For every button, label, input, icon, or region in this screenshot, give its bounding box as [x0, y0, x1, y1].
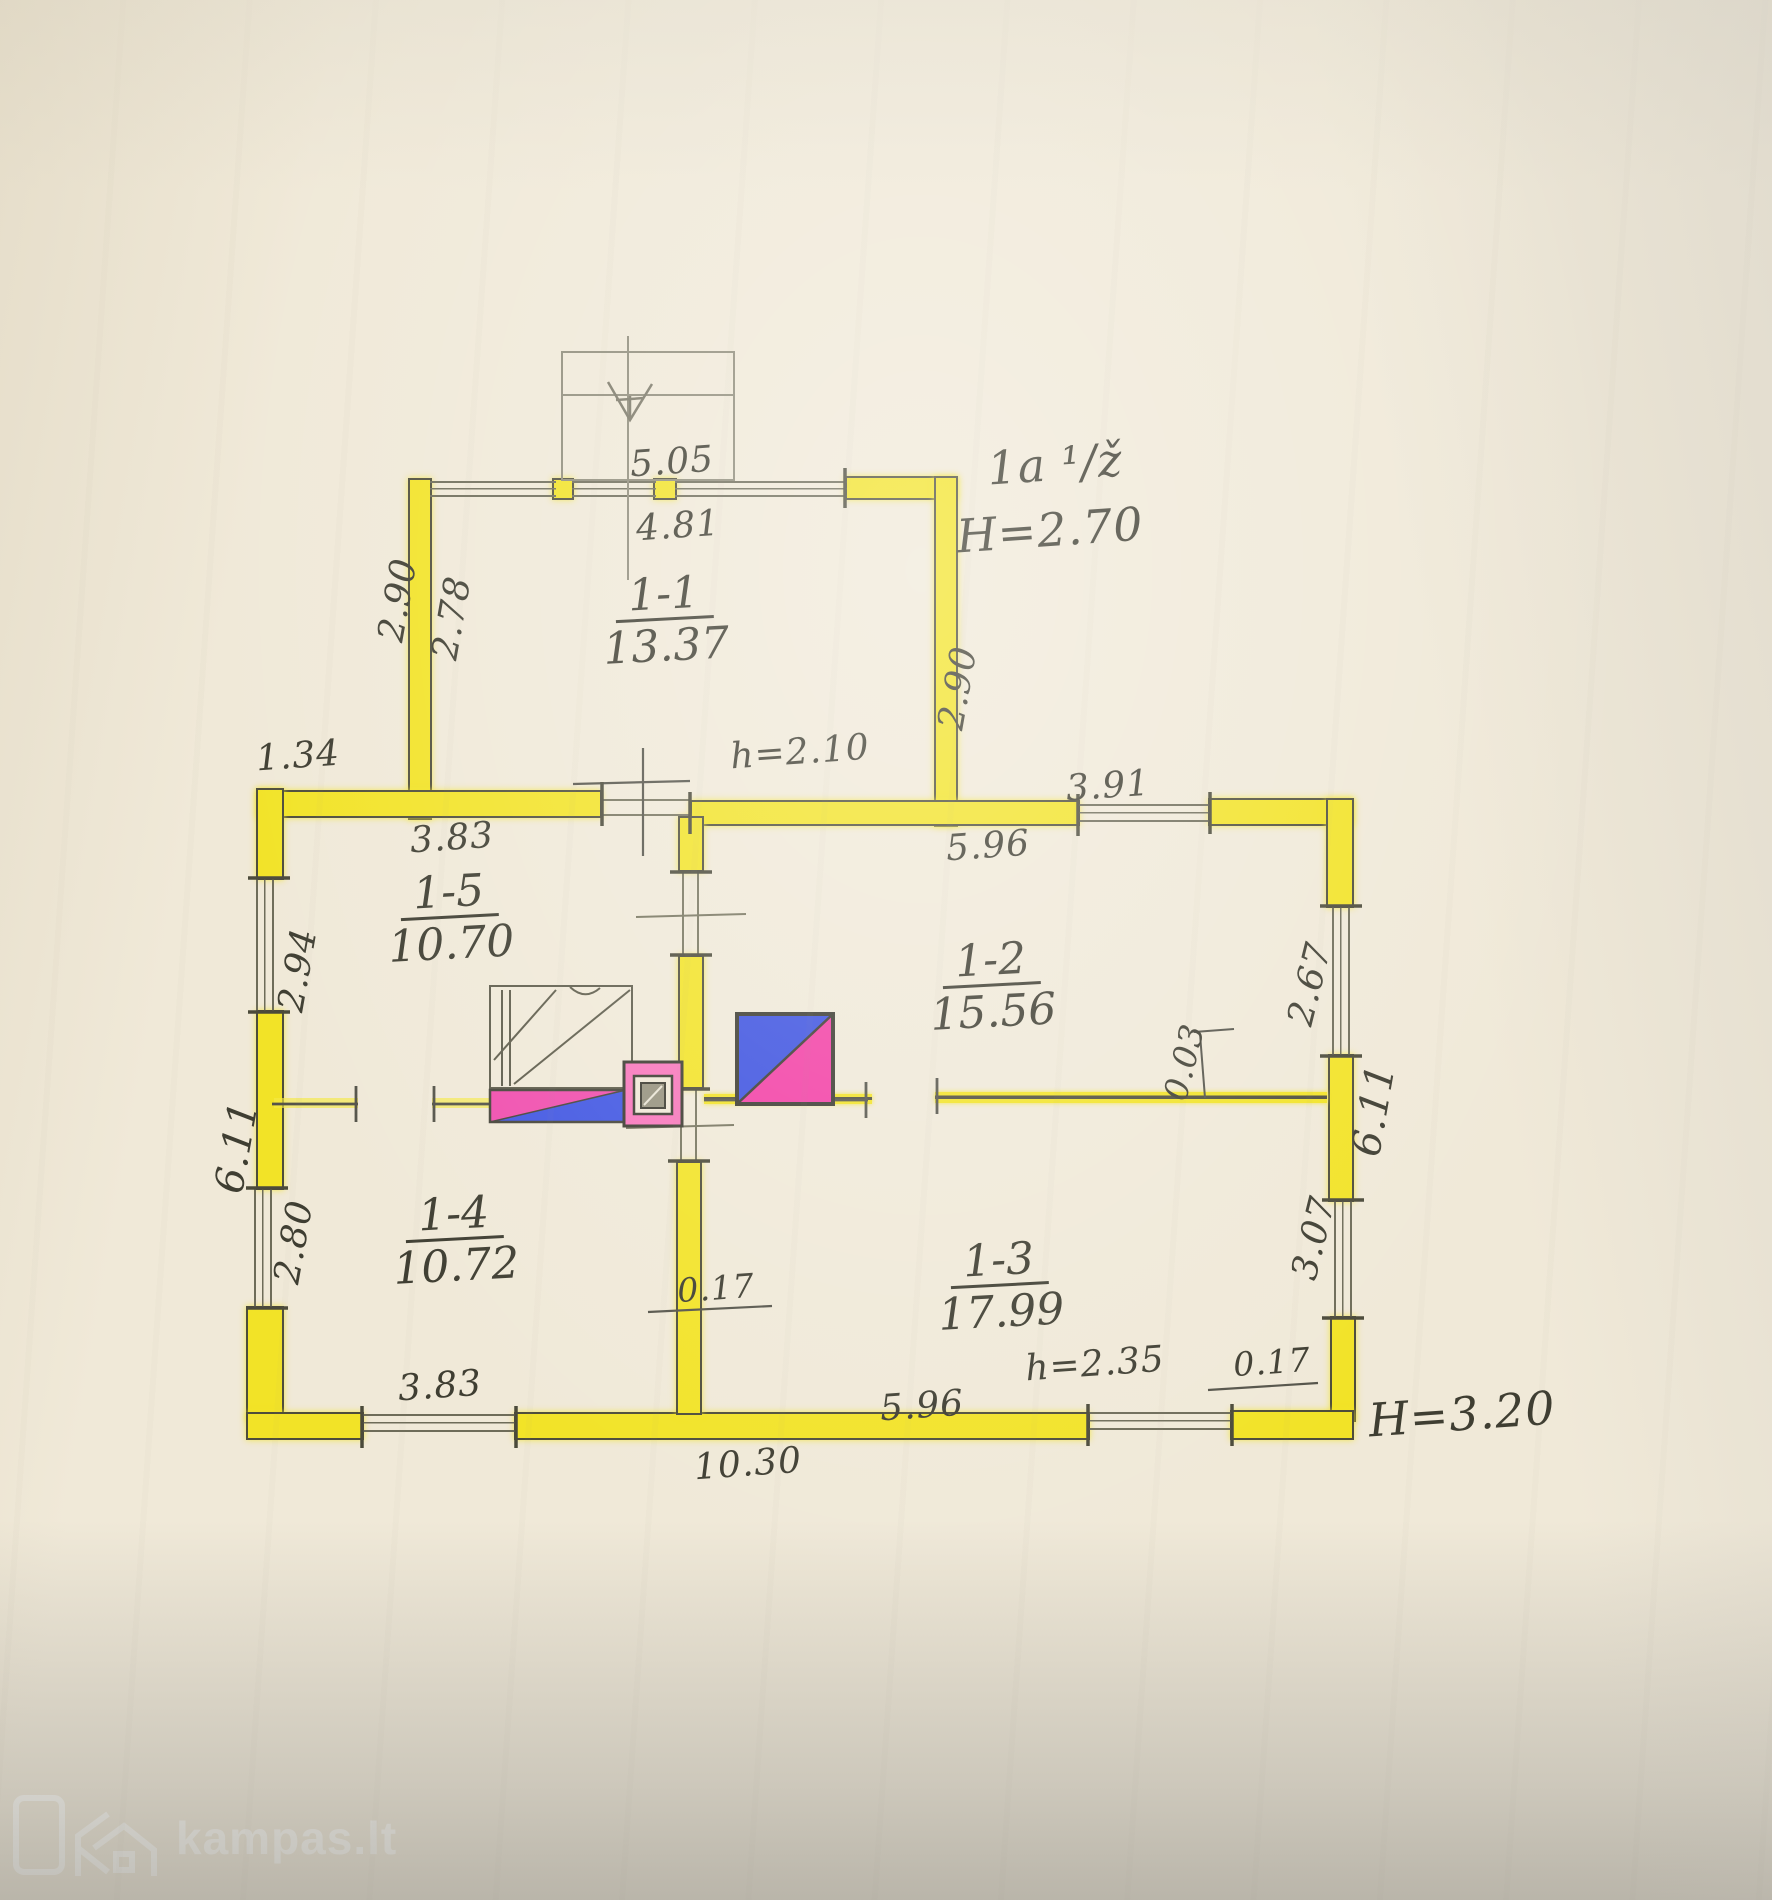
cabinet: [490, 986, 632, 1088]
window-right-top: [1332, 906, 1350, 1056]
window-wing-top-3: [675, 481, 847, 497]
room-1-5-id: 1-5: [398, 867, 499, 921]
wall-left-upper: [256, 788, 284, 880]
height-wing: H=2.70: [955, 497, 1145, 564]
partition-r15-r14-glow-2: [432, 1098, 490, 1108]
door-central-upper: [636, 872, 746, 955]
room-1-3-id: 1-3: [948, 1235, 1049, 1289]
entrance-arrow-icon: [608, 382, 652, 420]
dim-offset-top-left: 1.34: [255, 733, 342, 780]
room-1-5-area: 10.70: [387, 917, 515, 974]
room-1-4-id: 1-4: [403, 1189, 504, 1243]
room-1-1-area: 13.37: [602, 619, 730, 676]
kampas-logo-text: kampas.lt: [176, 1811, 397, 1865]
wall-bottom-left: [246, 1412, 364, 1440]
room-1-2-area: 15.56: [929, 985, 1057, 1042]
dim-wall-thickness-mid: 0.17: [676, 1266, 756, 1310]
stove: [737, 1014, 833, 1104]
dim-porch-outer: 5.05: [629, 439, 716, 486]
dim-room13-bottom: 5.96: [879, 1383, 966, 1430]
dim-window-left-bottom: 2.80: [267, 1197, 322, 1287]
wall-right-upper: [1326, 798, 1354, 908]
room-1-5-label: 1-5 10.70: [384, 866, 515, 973]
building-class: 1a ¹/ž: [986, 432, 1125, 495]
flue-box: [624, 1062, 682, 1126]
wall-bottom-middle: [514, 1412, 1090, 1440]
window-left-bottom: [254, 1188, 272, 1308]
kampas-logo-icon: [12, 1792, 162, 1884]
dim-door-height-main: h=2.35: [1024, 1339, 1166, 1390]
wall-left-corner: [246, 1306, 284, 1422]
dim-wing-left-inner: 2.78: [425, 573, 480, 663]
partition-r15-r14-glow-1: [274, 1098, 358, 1108]
kampas-watermark: kampas.lt: [12, 1792, 397, 1884]
dim-wall-thickness-corner: 0.17: [1232, 1340, 1312, 1384]
wall-main-top-left: [256, 790, 602, 818]
partition-r12-r13: [935, 1092, 1327, 1103]
room-1-2-id: 1-2: [940, 935, 1041, 989]
window-bottom-right: [1088, 1412, 1232, 1430]
room-1-4-area: 10.72: [392, 1239, 520, 1296]
floor-plan-photo: 1-1 13.37 1-5 10.70 1-2 15.56 1-4 10.72 …: [0, 0, 1772, 1900]
room-1-2-label: 1-2 15.56: [926, 934, 1057, 1041]
wall-central-top: [678, 816, 704, 872]
wall-bottom-right: [1230, 1410, 1354, 1440]
door-central-upper-ticks: [670, 872, 712, 955]
window-left-top: [256, 878, 274, 1012]
wedge-bench: [490, 1090, 626, 1122]
partition-stove-stub: [704, 1094, 872, 1104]
dim-door-height-wing: h=2.10: [729, 727, 871, 778]
door-top-opening: [602, 800, 690, 815]
dim-window-left-top: 2.94: [271, 925, 326, 1015]
dim-room15-width: 3.83: [409, 815, 496, 862]
dim-room12-top: 5.96: [945, 823, 1032, 870]
window-wing-top-1: [430, 481, 556, 497]
window-bottom-left: [362, 1414, 516, 1432]
room-1-1-label: 1-1 13.37: [599, 568, 730, 675]
dim-room14-width: 3.83: [397, 1363, 484, 1410]
dim-porch-inner: 4.81: [635, 503, 722, 550]
wall-right-corner: [1330, 1316, 1356, 1422]
height-main: H=3.20: [1367, 1381, 1557, 1448]
dim-total-width: 10.30: [693, 1440, 804, 1488]
dim-window-top-right: 3.91: [1065, 763, 1152, 810]
wall-central-middle: [678, 955, 704, 1089]
room-1-4-label: 1-4 10.72: [389, 1188, 520, 1295]
room-1-1-id: 1-1: [613, 569, 714, 623]
room-1-3-label: 1-3 17.99: [934, 1234, 1065, 1341]
room-1-3-area: 17.99: [937, 1285, 1065, 1342]
